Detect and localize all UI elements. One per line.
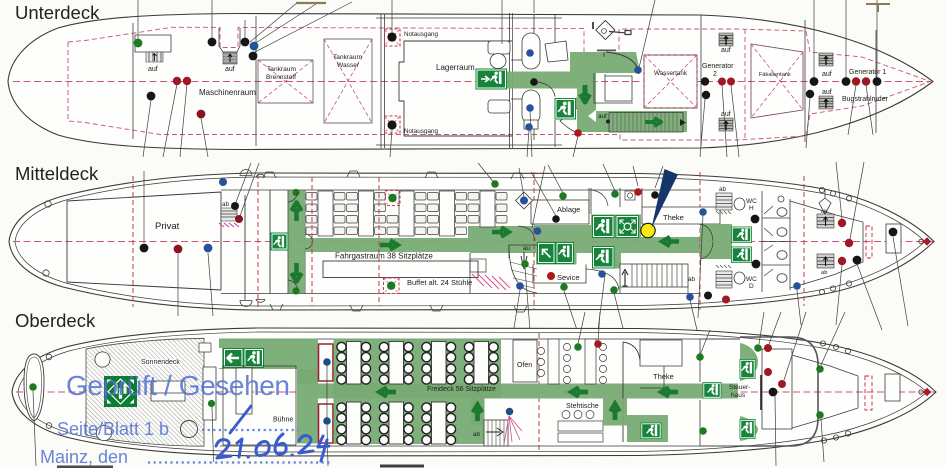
- svg-text:ab: ab: [473, 431, 481, 438]
- svg-text:Generator 1: Generator 1: [849, 69, 886, 76]
- svg-text:Fäkalientank: Fäkalientank: [759, 72, 791, 78]
- svg-text:Lagerraum: Lagerraum: [436, 63, 475, 72]
- svg-text:Oberdeck: Oberdeck: [15, 310, 96, 331]
- svg-text:Maschinenraum: Maschinenraum: [199, 88, 256, 97]
- svg-text:au: au: [523, 245, 531, 252]
- svg-text:auf: auf: [721, 111, 731, 118]
- svg-text:auf: auf: [598, 113, 607, 120]
- svg-text:Brennstoff: Brennstoff: [266, 74, 296, 81]
- svg-text:D: D: [749, 283, 754, 290]
- svg-text:Theke: Theke: [663, 213, 684, 222]
- svg-text:auf: auf: [822, 71, 832, 78]
- svg-text:auf: auf: [148, 66, 158, 73]
- svg-text:Stehtische: Stehtische: [566, 403, 599, 410]
- svg-text:Sonnendeck: Sonnendeck: [141, 359, 180, 366]
- svg-text:haus: haus: [731, 392, 746, 399]
- svg-text:Buffet alt. 24 Stühle: Buffet alt. 24 Stühle: [407, 278, 472, 287]
- svg-text:ab: ab: [688, 276, 696, 283]
- svg-text:Bugstrahlruder: Bugstrahlruder: [842, 96, 889, 103]
- svg-text:H: H: [749, 205, 754, 212]
- svg-text:Unterdeck: Unterdeck: [15, 2, 100, 23]
- svg-text:Notausgang: Notausgang: [404, 31, 438, 38]
- svg-text:auf: auf: [225, 66, 235, 73]
- svg-text:Mitteldeck: Mitteldeck: [15, 163, 99, 184]
- svg-text:auf: auf: [822, 89, 832, 96]
- svg-text:Wassertank: Wassertank: [654, 70, 688, 77]
- svg-text:Steuer-: Steuer-: [729, 384, 750, 391]
- svg-text:Mainz, den: Mainz, den: [40, 447, 128, 467]
- svg-text:auf: auf: [721, 47, 731, 54]
- svg-text:Seite/Blatt 1 b: Seite/Blatt 1 b: [57, 419, 169, 439]
- svg-text:ab: ab: [719, 186, 727, 193]
- svg-text:WC: WC: [746, 276, 757, 283]
- svg-text:2: 2: [713, 71, 717, 78]
- svg-text:Tankraum: Tankraum: [267, 66, 296, 73]
- svg-text:Theke: Theke: [653, 372, 674, 381]
- svg-text:Freideck 56 Sitzplätze: Freideck 56 Sitzplätze: [427, 386, 496, 393]
- svg-text:Ofen: Ofen: [517, 362, 532, 369]
- svg-text:Fahrgastraum 38 Sitzplätze: Fahrgastraum 38 Sitzplätze: [335, 252, 433, 261]
- svg-text:ab: ab: [222, 201, 230, 208]
- svg-text:Tankraum: Tankraum: [333, 54, 362, 61]
- svg-text:Bühne: Bühne: [273, 417, 293, 424]
- svg-text:Generator: Generator: [702, 63, 734, 70]
- svg-text:Wasser: Wasser: [337, 62, 360, 69]
- svg-text:Geprüft / Gesehen: Geprüft / Gesehen: [66, 370, 290, 401]
- svg-text:Ablage: Ablage: [557, 205, 580, 214]
- svg-text:WC: WC: [746, 198, 757, 205]
- svg-text:Notausgang: Notausgang: [404, 128, 438, 135]
- svg-text:Privat: Privat: [155, 221, 180, 232]
- svg-text:ab: ab: [821, 270, 827, 276]
- svg-text:Sevice: Sevice: [557, 273, 580, 282]
